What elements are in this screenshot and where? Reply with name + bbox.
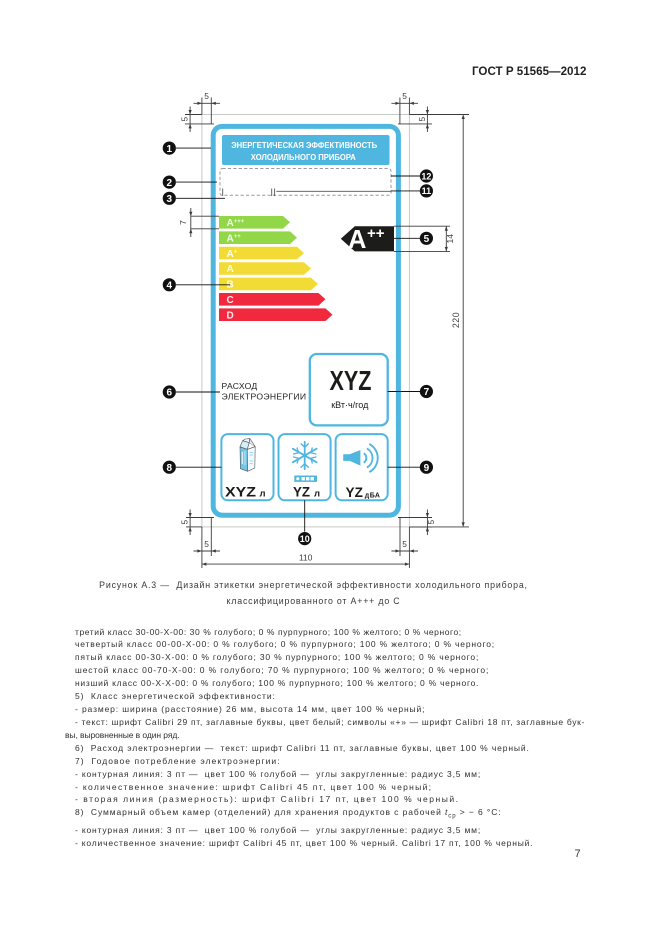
svg-text:14: 14 xyxy=(445,234,455,244)
svg-text:XYZ: XYZ xyxy=(330,365,372,396)
svg-text:12: 12 xyxy=(421,171,431,181)
svg-text:220: 220 xyxy=(451,312,461,328)
svg-text:5: 5 xyxy=(402,91,407,101)
svg-text:YZ: YZ xyxy=(346,484,364,500)
svg-text:C: C xyxy=(227,295,234,306)
svg-text:5: 5 xyxy=(204,91,209,101)
svg-text:кВт·ч/год: кВт·ч/год xyxy=(331,400,369,410)
svg-text:10: 10 xyxy=(300,534,310,544)
svg-text:5: 5 xyxy=(180,520,190,525)
svg-text:7: 7 xyxy=(424,387,430,398)
svg-text:D: D xyxy=(227,310,234,321)
svg-text:A: A xyxy=(348,226,366,254)
svg-text:РАСХОД: РАСХОД xyxy=(222,381,258,391)
svg-text:4: 4 xyxy=(167,281,173,292)
svg-text:110: 110 xyxy=(299,553,313,563)
svg-text:л: л xyxy=(314,488,320,499)
svg-text:1: 1 xyxy=(167,144,173,155)
svg-text:ЭЛЕКТРОЭНЕРГИИ: ЭЛЕКТРОЭНЕРГИИ xyxy=(222,392,307,402)
svg-text:11: 11 xyxy=(422,186,432,196)
svg-text:XYZ: XYZ xyxy=(225,483,257,499)
svg-text:ХОЛОДИЛЬНОГО ПРИБОРА: ХОЛОДИЛЬНОГО ПРИБОРА xyxy=(251,153,356,162)
svg-text:5: 5 xyxy=(402,539,407,549)
svg-text:3: 3 xyxy=(167,194,173,205)
svg-text:5: 5 xyxy=(426,520,436,525)
svg-text:A: A xyxy=(227,264,234,275)
svg-text:6: 6 xyxy=(167,388,173,399)
svg-text:5: 5 xyxy=(204,539,209,549)
svg-text:5: 5 xyxy=(424,234,430,245)
svg-text:дБА: дБА xyxy=(365,492,381,499)
svg-text:ЭНЕРГЕТИЧЕСКАЯ ЭФФЕКТИВНОСТЬ: ЭНЕРГЕТИЧЕСКАЯ ЭФФЕКТИВНОСТЬ xyxy=(231,141,377,150)
svg-text:9: 9 xyxy=(424,463,430,474)
svg-text:++: ++ xyxy=(367,225,385,242)
svg-text:л: л xyxy=(260,488,266,499)
svg-text:7: 7 xyxy=(178,220,188,225)
svg-text:YZ: YZ xyxy=(293,483,310,499)
svg-text:8: 8 xyxy=(167,463,173,474)
svg-text:5: 5 xyxy=(417,117,427,122)
svg-text:5: 5 xyxy=(180,117,190,122)
svg-text:2: 2 xyxy=(167,178,173,189)
